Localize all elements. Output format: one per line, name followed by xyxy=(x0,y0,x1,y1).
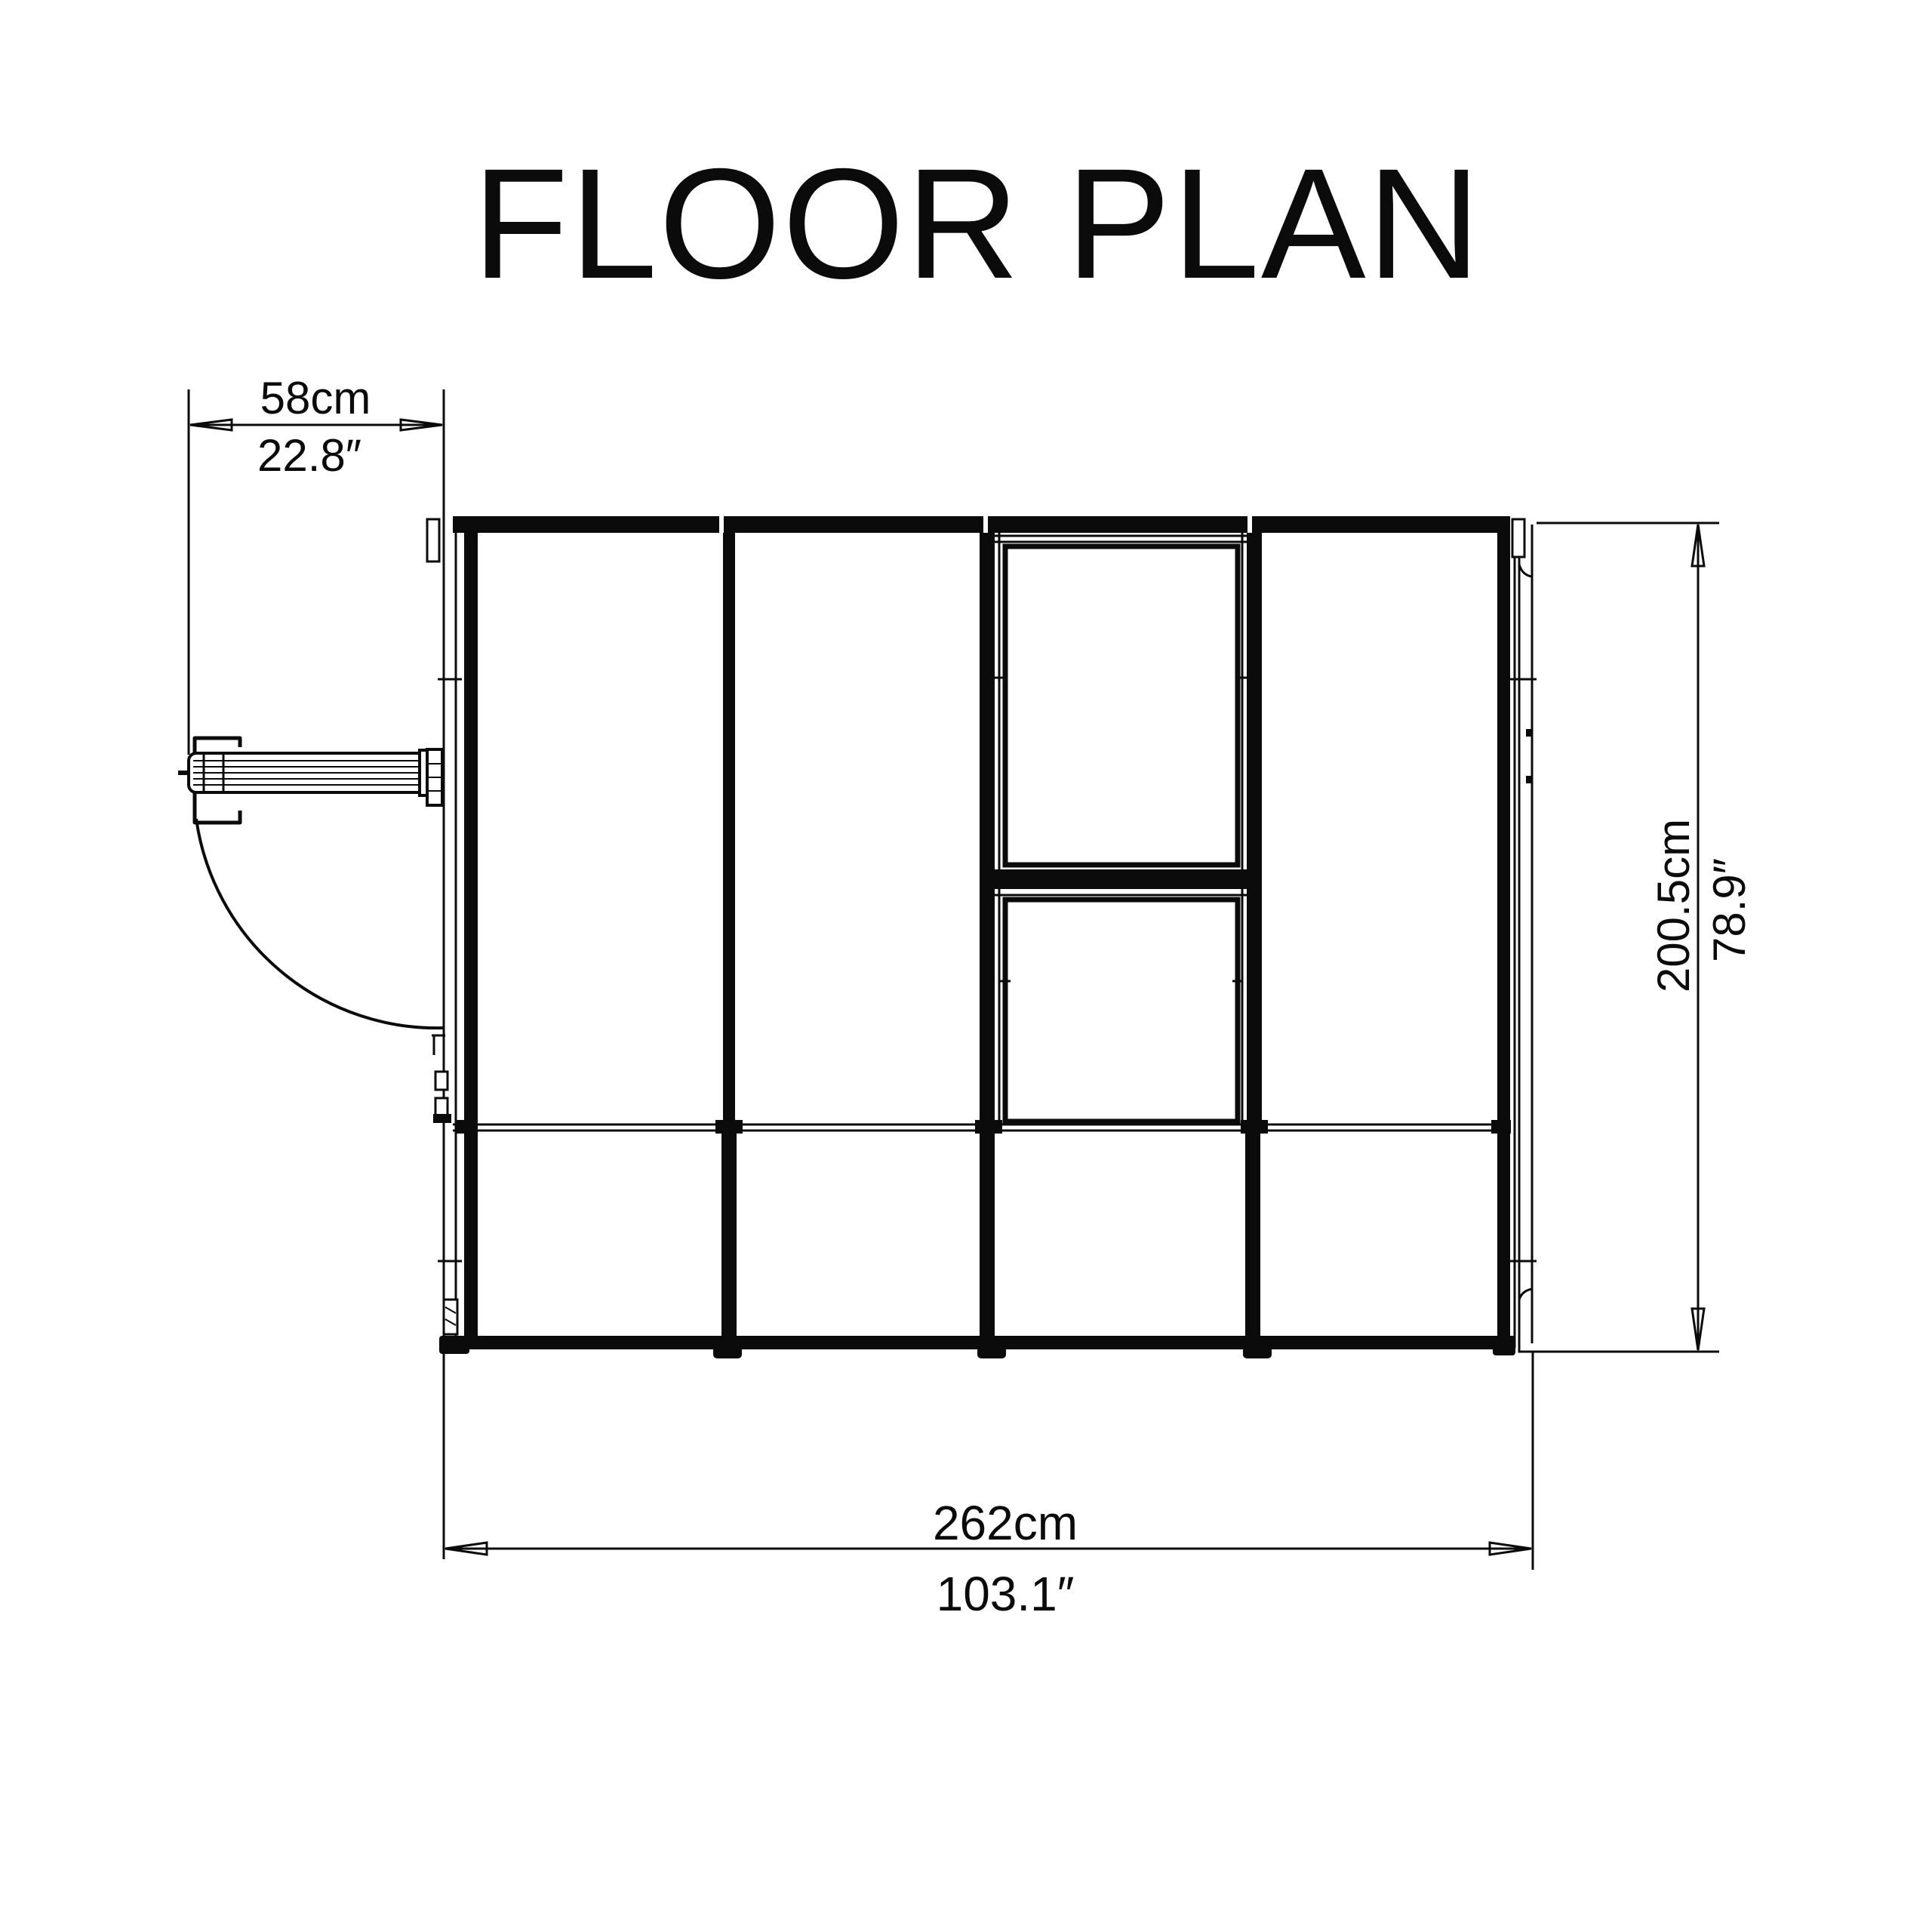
vent-window-lower xyxy=(1005,900,1238,1121)
foot-bracket-left xyxy=(444,1300,457,1334)
vent-window-upper xyxy=(1005,546,1238,865)
door-width-imperial-label: 22.8″ xyxy=(257,430,361,481)
corner-bracket-top-left xyxy=(427,519,439,561)
door xyxy=(178,738,451,1123)
roof-vent xyxy=(995,536,1247,1121)
door-handle-bottom xyxy=(195,792,240,823)
corner-bracket-top-right xyxy=(1512,519,1524,557)
door-handle-top xyxy=(195,738,240,753)
bottom-wall xyxy=(439,1336,1515,1358)
floor-plan-drawing: FLOOR PLAN xyxy=(0,0,1932,1932)
overall-depth-imperial-label: 78.9″ xyxy=(1704,858,1755,962)
mullion-3 xyxy=(1247,533,1262,1123)
mullion-2-lower xyxy=(980,1131,995,1337)
mullion-1 xyxy=(723,533,735,1123)
mullion-1-lower xyxy=(721,1131,737,1337)
dimension-overall-width: 262cm 103.1″ xyxy=(444,1352,1533,1621)
overall-width-metric-label: 262cm xyxy=(933,1496,1078,1550)
dimension-overall-depth: 200.5cm 78.9″ xyxy=(1519,523,1755,1352)
page-title: FLOOR PLAN xyxy=(472,137,1482,312)
overall-depth-metric-label: 200.5cm xyxy=(1648,819,1699,992)
dimension-door-width: 58cm 22.8″ xyxy=(189,373,444,755)
vent-mid-rail xyxy=(995,869,1247,889)
mid-divider xyxy=(453,1120,1511,1134)
floor-plan-page: FLOOR PLAN xyxy=(0,0,1932,1932)
right-wall xyxy=(1497,516,1533,1352)
left-wall xyxy=(427,516,478,1349)
door-swing-arc xyxy=(196,819,444,1028)
top-wall xyxy=(453,516,1497,533)
overall-width-imperial-label: 103.1″ xyxy=(937,1567,1075,1621)
mullion-3-lower xyxy=(1245,1131,1260,1337)
door-jamb-bracket xyxy=(435,1072,448,1090)
mullion-2 xyxy=(980,533,995,1123)
door-width-metric-label: 58cm xyxy=(260,373,371,423)
